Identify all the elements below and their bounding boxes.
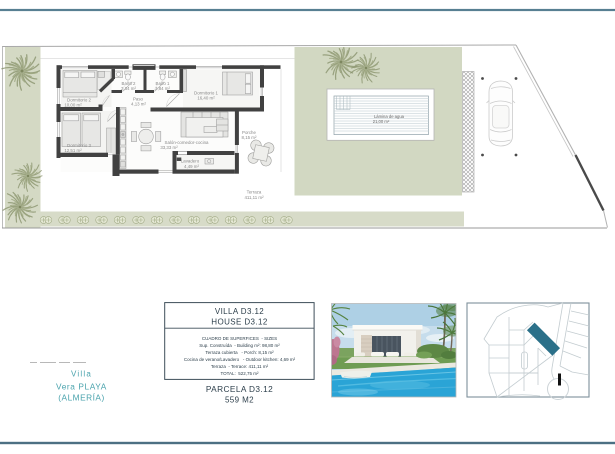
svg-text:PARCELA D3.12: PARCELA D3.12 xyxy=(206,384,273,394)
svg-text:33,33 m²: 33,33 m² xyxy=(160,145,178,150)
svg-text:4,49 m²: 4,49 m² xyxy=(184,164,199,169)
svg-text:HOUSE D3.12: HOUSE D3.12 xyxy=(211,318,268,327)
svg-text:16,40 m²: 16,40 m² xyxy=(197,95,215,100)
svg-text:411,11 m²: 411,11 m² xyxy=(244,195,264,200)
svg-text:VILLA D3.12: VILLA D3.12 xyxy=(215,307,264,316)
svg-text:4,13 m²: 4,13 m² xyxy=(131,101,146,106)
svg-text:12,51 m²: 12,51 m² xyxy=(64,148,82,153)
svg-text:Terraza: Terraza xyxy=(247,190,262,195)
svg-text:TOTAL: 522,75 m²: TOTAL: 522,75 m² xyxy=(220,371,259,376)
svg-text:Villa: Villa xyxy=(71,369,92,378)
svg-text:Cocina de verano/Lavadero -: Cocina de verano/Lavadero - Outdoor kitc… xyxy=(184,357,296,362)
svg-text:Lavadero: Lavadero xyxy=(181,159,200,164)
svg-text:21,00 m²: 21,00 m² xyxy=(373,119,390,124)
svg-text:(ALMERÍA): (ALMERÍA) xyxy=(58,393,104,403)
svg-text:Vera PLAYA: Vera PLAYA xyxy=(56,382,107,392)
svg-text:10,00 m²: 10,00 m² xyxy=(64,103,82,108)
svg-text:Terraza - Terrace: 411,11 m²: Terraza - Terrace: 411,11 m² xyxy=(211,364,269,369)
svg-text:Terraza cubierta - Porch: 8,: Terraza cubierta - Porch: 8,15 m² xyxy=(205,350,274,355)
svg-text:8,15 m²: 8,15 m² xyxy=(242,135,257,140)
svg-text:CUADRO DE SUPERFICES - SIZES: CUADRO DE SUPERFICES - SIZES xyxy=(202,336,277,341)
svg-text:559 M2: 559 M2 xyxy=(225,396,254,405)
svg-text:Sup. Construída - Building m²: Sup. Construída - Building m²: 98,80 m² xyxy=(199,343,280,348)
